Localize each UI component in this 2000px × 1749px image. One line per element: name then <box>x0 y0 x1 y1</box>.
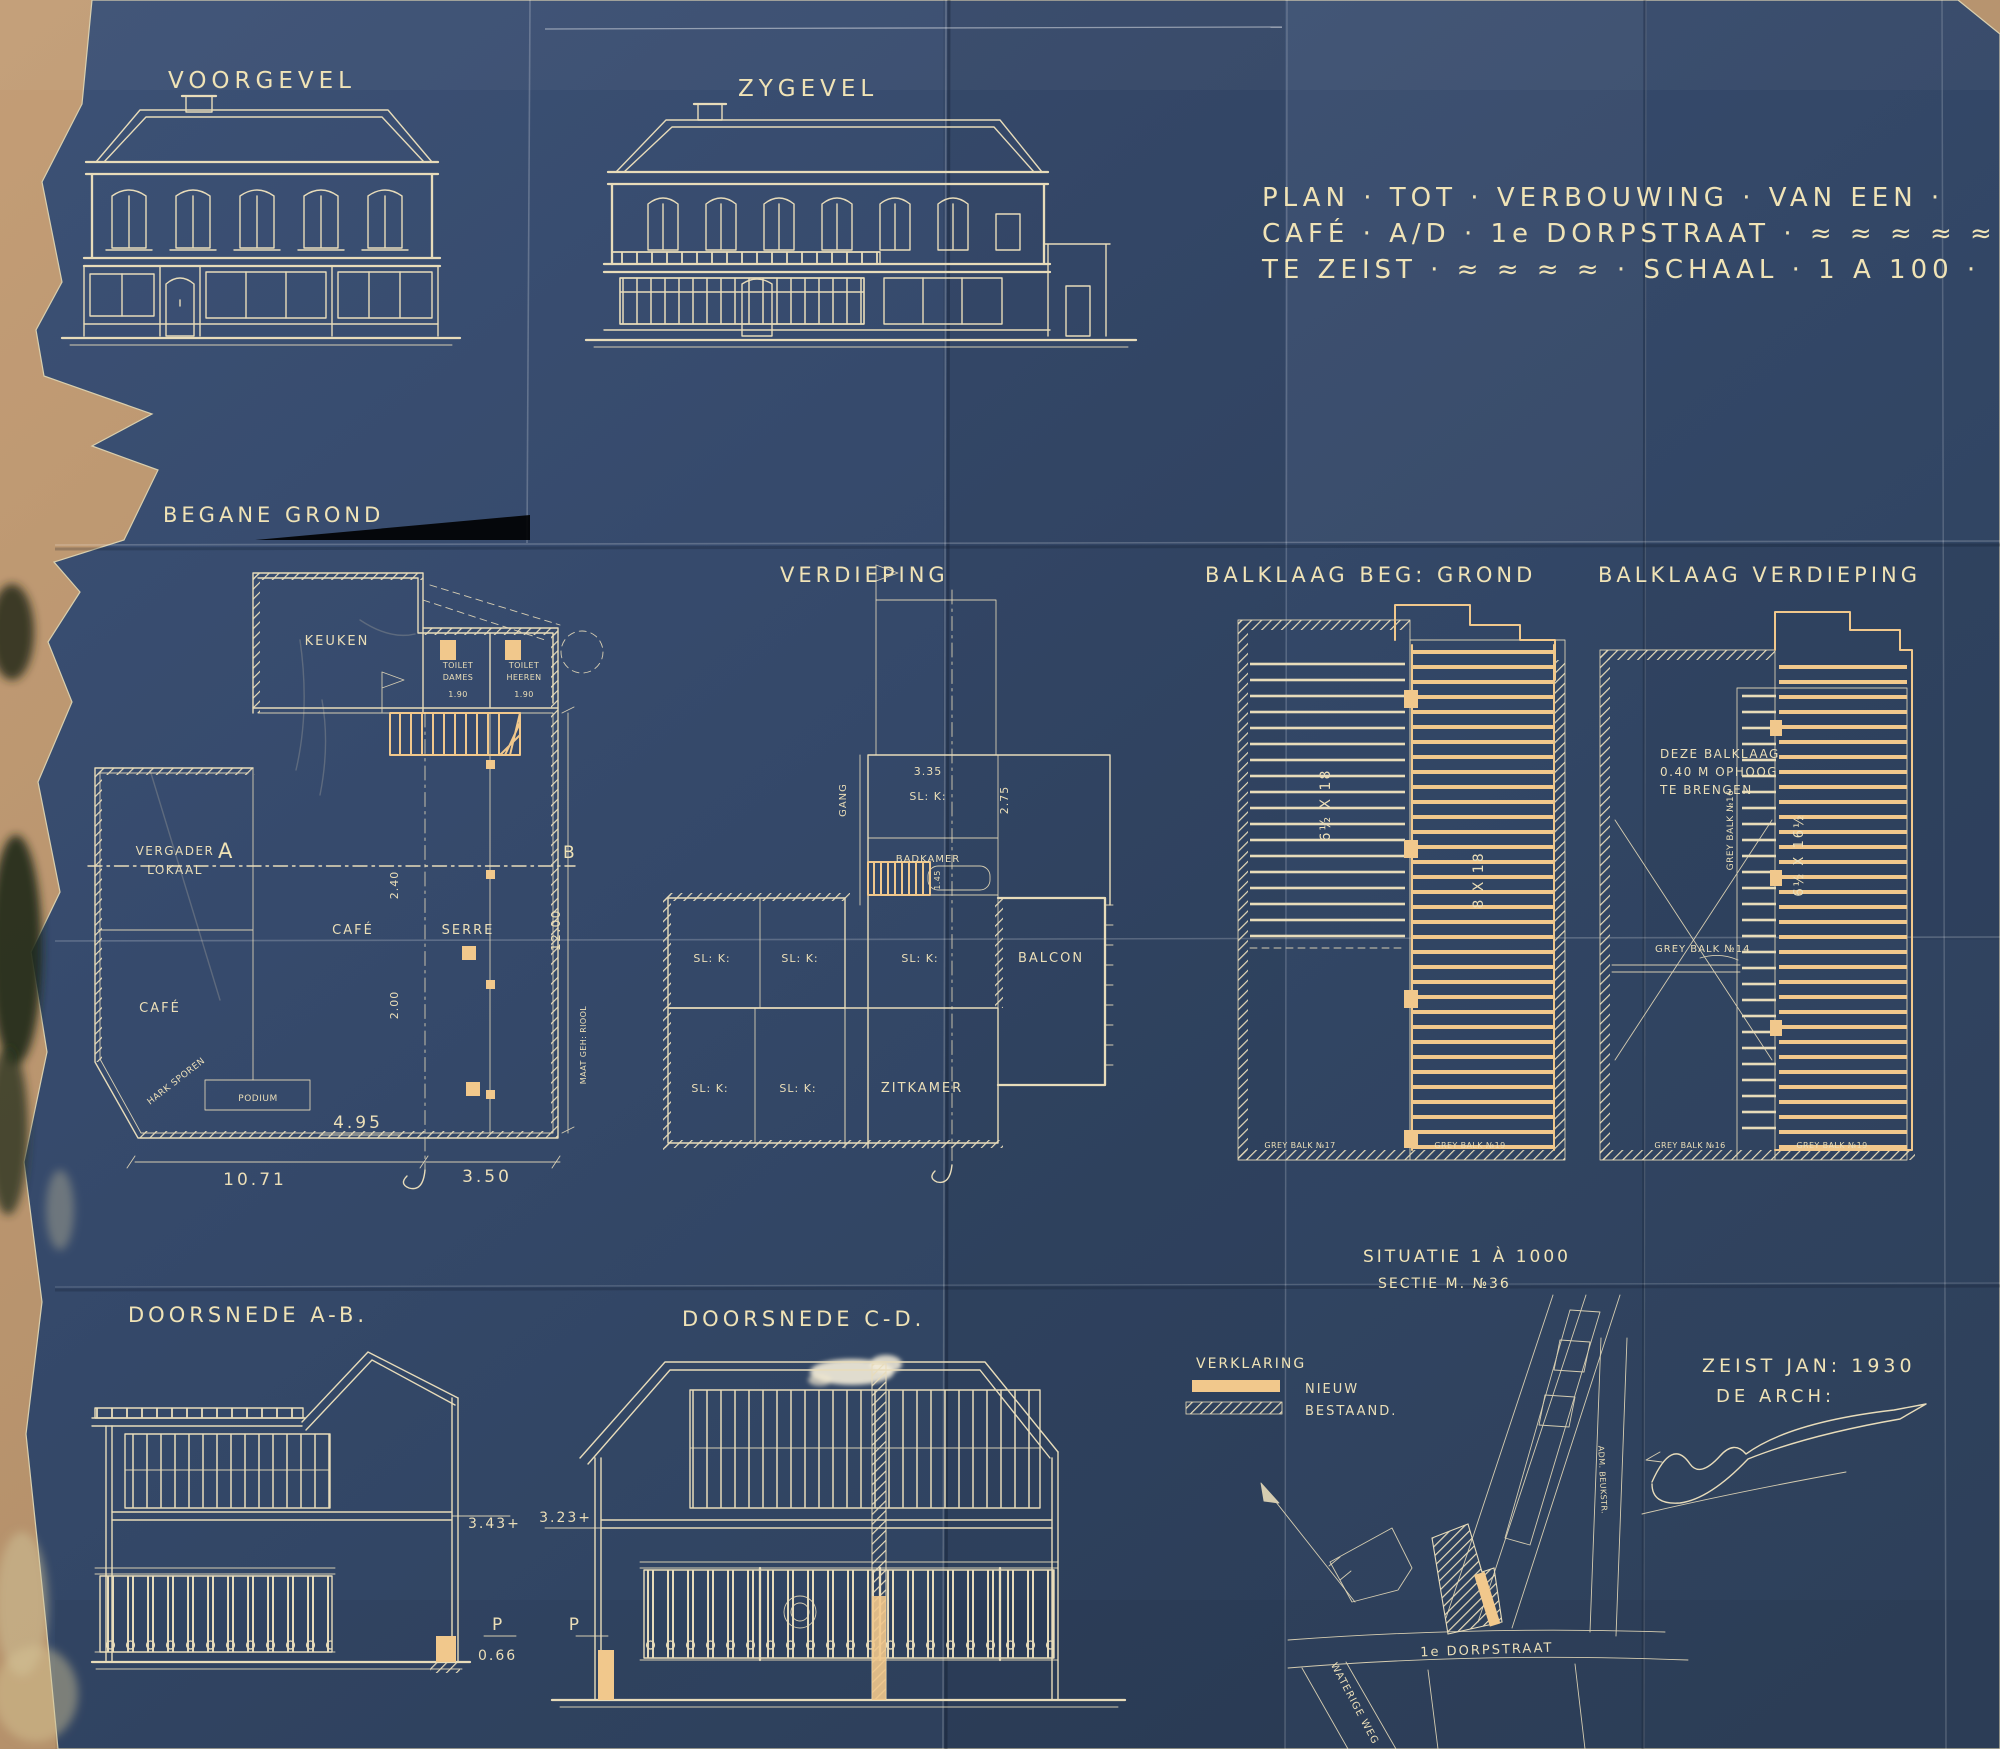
room-toilet-dames-1: TOILET <box>442 661 473 670</box>
room-toilet-dames-2: DAMES <box>443 673 474 682</box>
begane-grond-label: BEGANE GROND <box>163 503 384 527</box>
colophon-place-date: ZEIST JAN: 1930 <box>1702 1355 1916 1377</box>
jv-beam-note-b1: GREY BALK №16 <box>1654 1141 1725 1150</box>
room-slk-mid: SL: K: <box>901 952 938 965</box>
legend-title: VERKLARING <box>1196 1356 1306 1372</box>
room-zitkamer: ZITKAMER <box>881 1081 963 1096</box>
riool-note: MAAT GEH: RIOOL <box>579 1006 588 1084</box>
blueprint-sheet-svg: VOORGEVEL ZYGEVEL <box>0 0 2000 1749</box>
doorsnede-ab-label: DOORSNEDE A-B. <box>128 1303 368 1327</box>
room-cafe-left: CAFÉ <box>139 1000 181 1016</box>
blueprint-photo: VOORGEVEL ZYGEVEL <box>0 0 2000 1749</box>
legend-new-swatch <box>1192 1380 1280 1392</box>
dim-w-top: 3.35 <box>914 765 943 778</box>
room-slk-l1: SL: K: <box>693 952 730 965</box>
room-slk-b2: SL: K: <box>779 1082 816 1095</box>
room-badkamer: BADKAMER <box>896 854 961 865</box>
dim-w-inner: 4.95 <box>333 1113 383 1133</box>
section-mark-a: A <box>218 839 236 863</box>
dim-w-main: 10.71 <box>223 1170 287 1190</box>
zygevel-label: ZYGEVEL <box>738 76 878 102</box>
room-toilet-heeren-1: TOILET <box>508 661 539 670</box>
ab-footing-hatch <box>430 1662 460 1673</box>
voorgevel-label: VOORGEVEL <box>168 68 356 94</box>
room-cafe-mid: CAFÉ <box>332 922 374 938</box>
legend-existing-swatch <box>1186 1402 1282 1414</box>
room-keuken: KEUKEN <box>305 634 370 649</box>
room-slk-b1: SL: K: <box>691 1082 728 1095</box>
legend-new-label: NIEUW <box>1305 1382 1359 1397</box>
room-slk-l2: SL: K: <box>781 952 818 965</box>
colophon-architect: DE ARCH: <box>1716 1386 1835 1407</box>
title-line-1: PLAN · TOT · VERBOUWING · VAN EEN · <box>1262 183 1944 213</box>
ab-dim-base: 0.66 <box>478 1648 517 1664</box>
dim-w-serre: 3.50 <box>462 1167 512 1187</box>
jg-beam-note-2: GREY BALK №19 <box>1434 1141 1505 1150</box>
room-balcon: BALCON <box>1018 951 1084 966</box>
room-slk-top: SL: K: <box>909 790 946 803</box>
ab-datum: P <box>492 1615 505 1635</box>
jv-note-3: TE BRENGEN <box>1659 783 1753 797</box>
jv-beam-14: GREY BALK №14 <box>1655 944 1750 955</box>
dim-toilet-heeren: 1.90 <box>514 690 533 699</box>
cd-datum: P <box>569 1615 582 1635</box>
situatie-subtitle: SECTIE M. №36 <box>1378 1276 1511 1292</box>
jv-beam-note-b2: GREY BALK №19 <box>1796 1141 1867 1150</box>
dim-d1: 2.40 <box>388 871 401 900</box>
jv-joists-main <box>1779 655 1907 1150</box>
balklaag-bg-label: BALKLAAG BEG: GROND <box>1205 563 1536 587</box>
title-line-3: TE ZEIST · ≈ ≈ ≈ ≈ · SCHAAL · 1 A 100 · <box>1261 255 1980 285</box>
doorsnede-cd-label: DOORSNEDE C-D. <box>682 1307 925 1331</box>
balklaag-vd-label: BALKLAAG VERDIEPING <box>1598 563 1921 587</box>
title-block: PLAN · TOT · VERBOUWING · VAN EEN · CAFÉ… <box>1255 183 1997 285</box>
situatie-title: SITUATIE 1 À 1000 <box>1363 1245 1571 1267</box>
jv-note-1: DEZE BALKLAAG <box>1660 747 1780 761</box>
jv-note-2: 0.40 M OPHOOG <box>1660 765 1778 779</box>
dim-toilet-dames: 1.90 <box>448 690 467 699</box>
jv-joist-size: 6½ X 16½ <box>1792 813 1807 896</box>
section-mark-b: B <box>563 843 578 863</box>
jg-beam-note-1: GREY BALK №17 <box>1264 1141 1335 1150</box>
jg-joist-right-size: 8 X 18 <box>1471 851 1487 908</box>
ab-dim-floor: 3.43+ <box>468 1516 521 1532</box>
cd-pier-base <box>872 1596 886 1700</box>
legend-existing-label: BESTAAND. <box>1305 1404 1397 1419</box>
jv-beam-16: GREY BALK №16 <box>1726 790 1736 871</box>
cd-dim-floor: 3.23+ <box>539 1510 592 1526</box>
room-podium: PODIUM <box>238 1094 277 1104</box>
room-toilet-heeren-2: HEEREN <box>506 673 541 682</box>
jg-joist-left-size: 6½ X 18 <box>1318 769 1334 842</box>
ab-plinth <box>436 1636 456 1662</box>
dim-h-right: 12.00 <box>549 909 563 951</box>
cd-plinth <box>598 1650 614 1700</box>
room-gang: GANG <box>838 783 849 817</box>
dim-d2: 2.00 <box>388 991 401 1020</box>
dim-d-mid: 1.45 <box>933 870 942 889</box>
room-vergader-2: LOKAAL <box>147 863 203 877</box>
dim-d-top: 2.75 <box>998 786 1011 815</box>
room-vergader-1: VERGADER <box>136 844 215 858</box>
room-serre: SERRE <box>442 923 495 938</box>
title-line-2: CAFÉ · A/D · 1e DORPSTRAAT · ≈ ≈ ≈ ≈ ≈ <box>1262 217 1997 249</box>
verdieping-label: VERDIEPING <box>780 563 949 587</box>
